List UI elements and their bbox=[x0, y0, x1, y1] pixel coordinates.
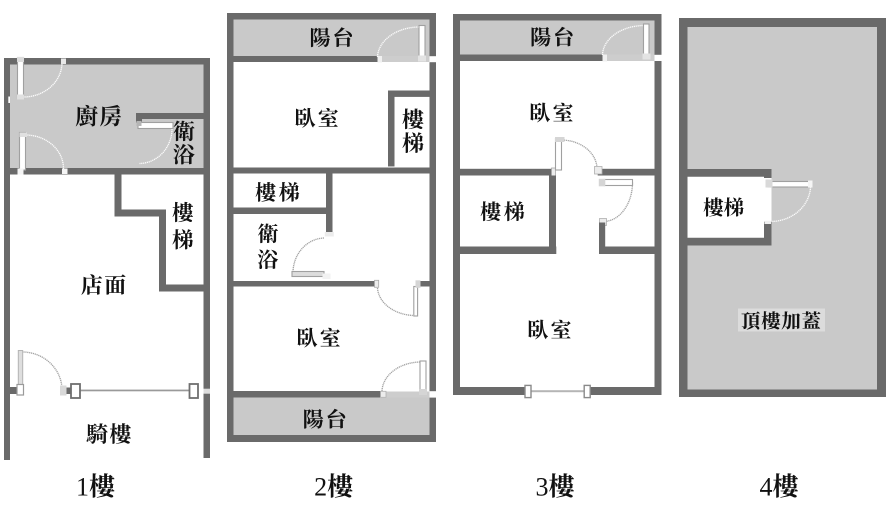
svg-text:2: 2 bbox=[314, 472, 327, 501]
svg-text:1: 1 bbox=[76, 472, 89, 501]
svg-text:4: 4 bbox=[760, 472, 773, 501]
svg-text:3: 3 bbox=[536, 472, 549, 501]
